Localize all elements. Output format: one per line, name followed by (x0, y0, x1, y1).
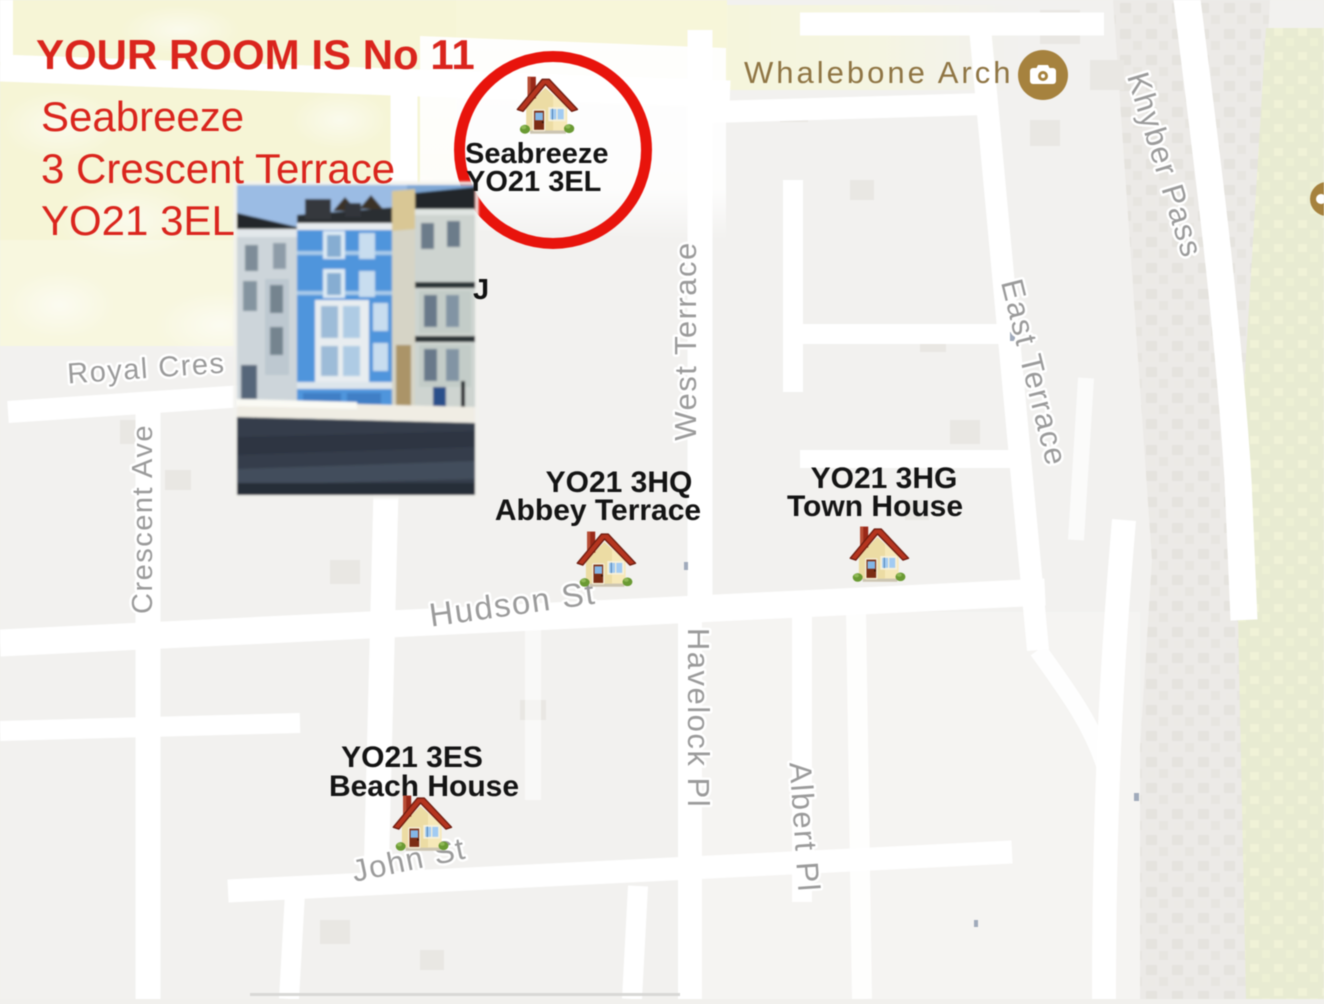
svg-text:YOUR ROOM IS No 11: YOUR ROOM IS No 11 (36, 31, 475, 78)
svg-text:J: J (473, 274, 489, 306)
svg-text:Abbey Terrace: Abbey Terrace (495, 494, 701, 527)
svg-text:Whalebone Arch: Whalebone Arch (744, 55, 1013, 90)
svg-text:Havelock Pl: Havelock Pl (681, 628, 716, 808)
svg-text:3 Crescent Terrace: 3 Crescent Terrace (41, 145, 395, 192)
svg-text:Crescent Ave: Crescent Ave (127, 424, 159, 614)
svg-text:West Terrace: West Terrace (668, 241, 703, 440)
svg-text:YO21 3EL: YO21 3EL (41, 197, 235, 244)
svg-text:Seabreeze: Seabreeze (41, 93, 244, 140)
svg-text:Town House: Town House (787, 490, 963, 523)
svg-text:YO21 3EL: YO21 3EL (466, 166, 601, 198)
